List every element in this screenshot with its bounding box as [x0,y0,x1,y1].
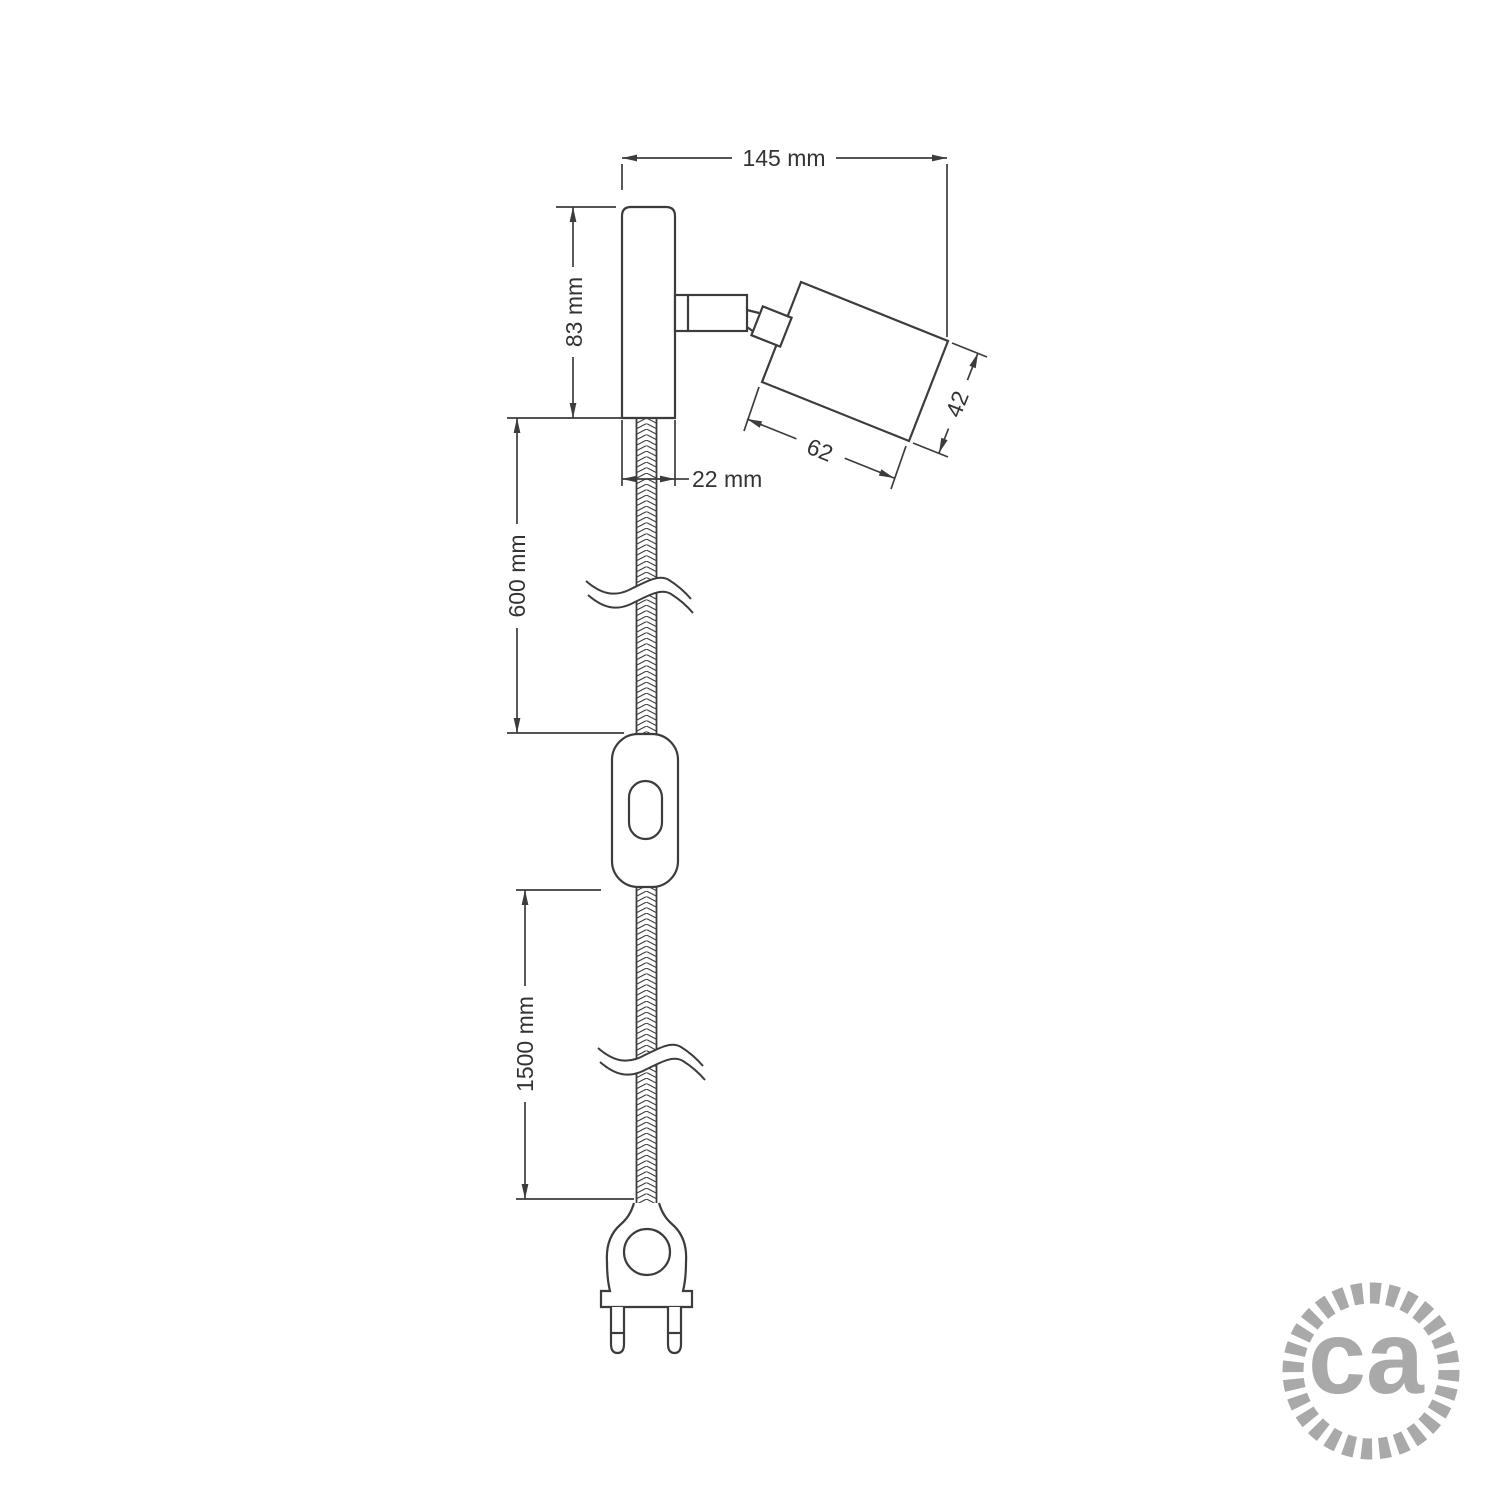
cable-lower [598,887,705,1203]
wall-plate [622,207,675,418]
svg-text:600 mm: 600 mm [504,534,530,617]
plug-prong-left [611,1307,624,1353]
dim-label-cable-lower: 1500 mm [512,986,538,1102]
spotlight-body [762,282,948,441]
svg-text:22 mm: 22 mm [692,466,762,492]
plug-screw-hole [624,1229,670,1275]
euro-plug [601,1203,692,1353]
swivel-neck-top-line [747,310,759,313]
dim-label-plate-height: 83 mm [561,267,587,357]
inline-switch [612,734,678,887]
lamp-dimension-diagram: 145 mm 83 mm 22 mm 600 mm 1500 mm 62 42 … [0,0,1500,1500]
svg-text:145 mm: 145 mm [742,145,825,171]
brand-logo: ca [1278,1278,1463,1463]
svg-text:83 mm: 83 mm [561,277,587,347]
dim-label-cable-upper: 600 mm [504,524,530,628]
plug-prong-right [668,1307,681,1353]
switch-rocker [629,781,662,839]
swivel-arm [675,295,747,331]
logo-text: ca [1308,1300,1425,1416]
dim-label-overall-width: 145 mm [732,145,836,171]
dim-label-plate-width: 22 mm [692,466,762,492]
dim-label-spotlight-diameter: 42 [935,375,978,433]
svg-text:1500 mm: 1500 mm [512,996,538,1092]
technical-drawing-page: 145 mm 83 mm 22 mm 600 mm 1500 mm 62 42 … [0,0,1500,1500]
dim-label-spotlight-length: 62 [791,428,849,471]
cable-upper [586,418,693,735]
